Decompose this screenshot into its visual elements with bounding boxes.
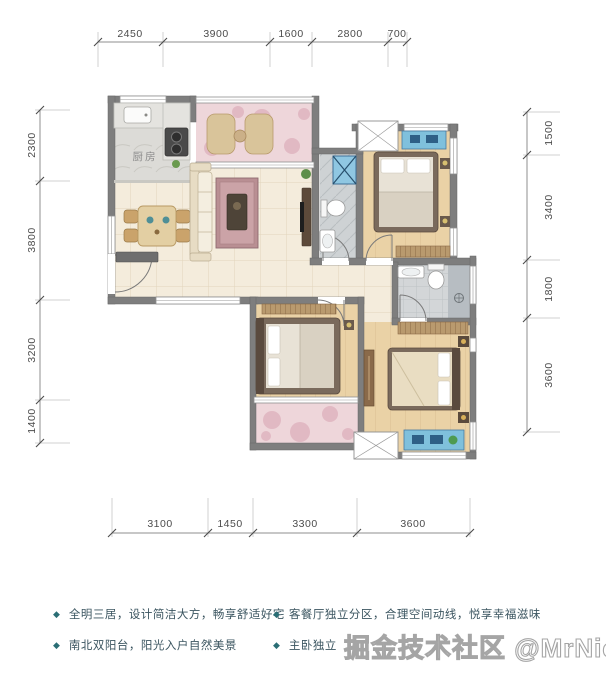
dim-label: 3100: [147, 518, 172, 530]
wardrobe: [398, 322, 468, 334]
laptop-icon: [430, 435, 443, 444]
dim-label: 3300: [292, 518, 317, 530]
toilet-tank: [321, 200, 327, 217]
basin-bowl: [402, 268, 420, 276]
pillow: [438, 381, 450, 405]
watermark-text: 掘金技术社区 @MrNiceGuy: [344, 628, 606, 665]
pillow: [268, 358, 280, 386]
wardrobe: [396, 246, 450, 257]
plant-icon: [449, 436, 458, 445]
dim-label: 3900: [203, 28, 228, 40]
toilet-tank: [428, 264, 444, 270]
pillow: [381, 159, 404, 173]
centerpiece: [155, 230, 160, 235]
bed: [256, 318, 340, 394]
floorplan-page: 2450 3900 1600 2800 700 2300 3800 3200 1…: [0, 0, 606, 674]
shoe-cabinet: [116, 252, 158, 262]
lounge-chair: [207, 114, 235, 154]
table-decor: [233, 202, 241, 210]
dim-label: 3600: [400, 518, 425, 530]
coffee-table: [227, 194, 247, 230]
toilet: [327, 200, 345, 216]
dining-chair: [124, 229, 138, 242]
lounge-chair: [245, 114, 273, 154]
desk: [402, 131, 446, 149]
dim-label: 1450: [217, 518, 242, 530]
desk: [404, 430, 464, 450]
headboard: [256, 318, 264, 394]
dim-label: 2800: [337, 28, 362, 40]
dim-label: 700: [387, 28, 406, 40]
dim-label: 2300: [26, 132, 38, 157]
pillow: [407, 159, 430, 173]
desk-item: [426, 135, 438, 143]
master-side-window: [470, 338, 476, 352]
plate: [163, 217, 170, 224]
lamp-icon: [461, 339, 466, 344]
toilet: [428, 271, 444, 289]
corridor-floor: [314, 264, 394, 297]
side-table: [234, 130, 246, 142]
pillow: [438, 353, 450, 377]
dining-chair: [124, 210, 138, 223]
laptop-icon: [412, 435, 424, 444]
top-dimension-ruler: 2450 3900 1600 2800 700: [94, 28, 411, 67]
dim-label: 1800: [543, 276, 555, 301]
dining-chair: [176, 229, 190, 242]
dim-label: 1400: [26, 408, 38, 433]
dining-table: [138, 206, 176, 246]
dim-label: 1500: [543, 120, 555, 145]
bed: [388, 348, 460, 410]
right-dimension-ruler: 1500 3400 1800 3600: [523, 108, 560, 436]
plate: [147, 217, 154, 224]
dresser: [262, 304, 336, 314]
bed: [374, 152, 438, 232]
dim-label: 3600: [543, 362, 555, 387]
desk-item: [410, 135, 420, 143]
pillow: [268, 326, 280, 354]
counter-edge: [114, 180, 190, 183]
headboard: [452, 348, 460, 410]
bottom-dimension-ruler: 3100 1450 3300 3600: [108, 498, 474, 537]
dim-label: 2450: [117, 28, 142, 40]
master-entry-floor: [364, 297, 392, 324]
lamp-icon: [347, 323, 352, 328]
left-dimension-ruler: 2300 3800 3200 1400: [26, 106, 70, 447]
dim-label: 3800: [26, 227, 38, 252]
kitchen-label: 厨房: [133, 150, 158, 163]
dim-label: 1600: [278, 28, 303, 40]
floor-plan-canvas: 2450 3900 1600 2800 700 2300 3800 3200 1…: [0, 0, 606, 674]
sofa: [190, 163, 212, 261]
stove-burner: [172, 144, 182, 154]
lamp-icon: [461, 415, 466, 420]
dim-label: 3400: [543, 194, 555, 219]
lamp-icon: [443, 219, 448, 224]
tv-screen: [300, 202, 304, 232]
sink-faucet: [145, 114, 148, 117]
shower-zone-floor: [448, 264, 470, 318]
basin-bowl: [323, 234, 333, 248]
plant-icon: [301, 169, 311, 179]
plant-icon: [172, 160, 180, 168]
dining-chair: [176, 210, 190, 223]
stove-burner: [172, 132, 182, 142]
dim-label: 3200: [26, 337, 38, 362]
lamp-icon: [443, 161, 448, 166]
